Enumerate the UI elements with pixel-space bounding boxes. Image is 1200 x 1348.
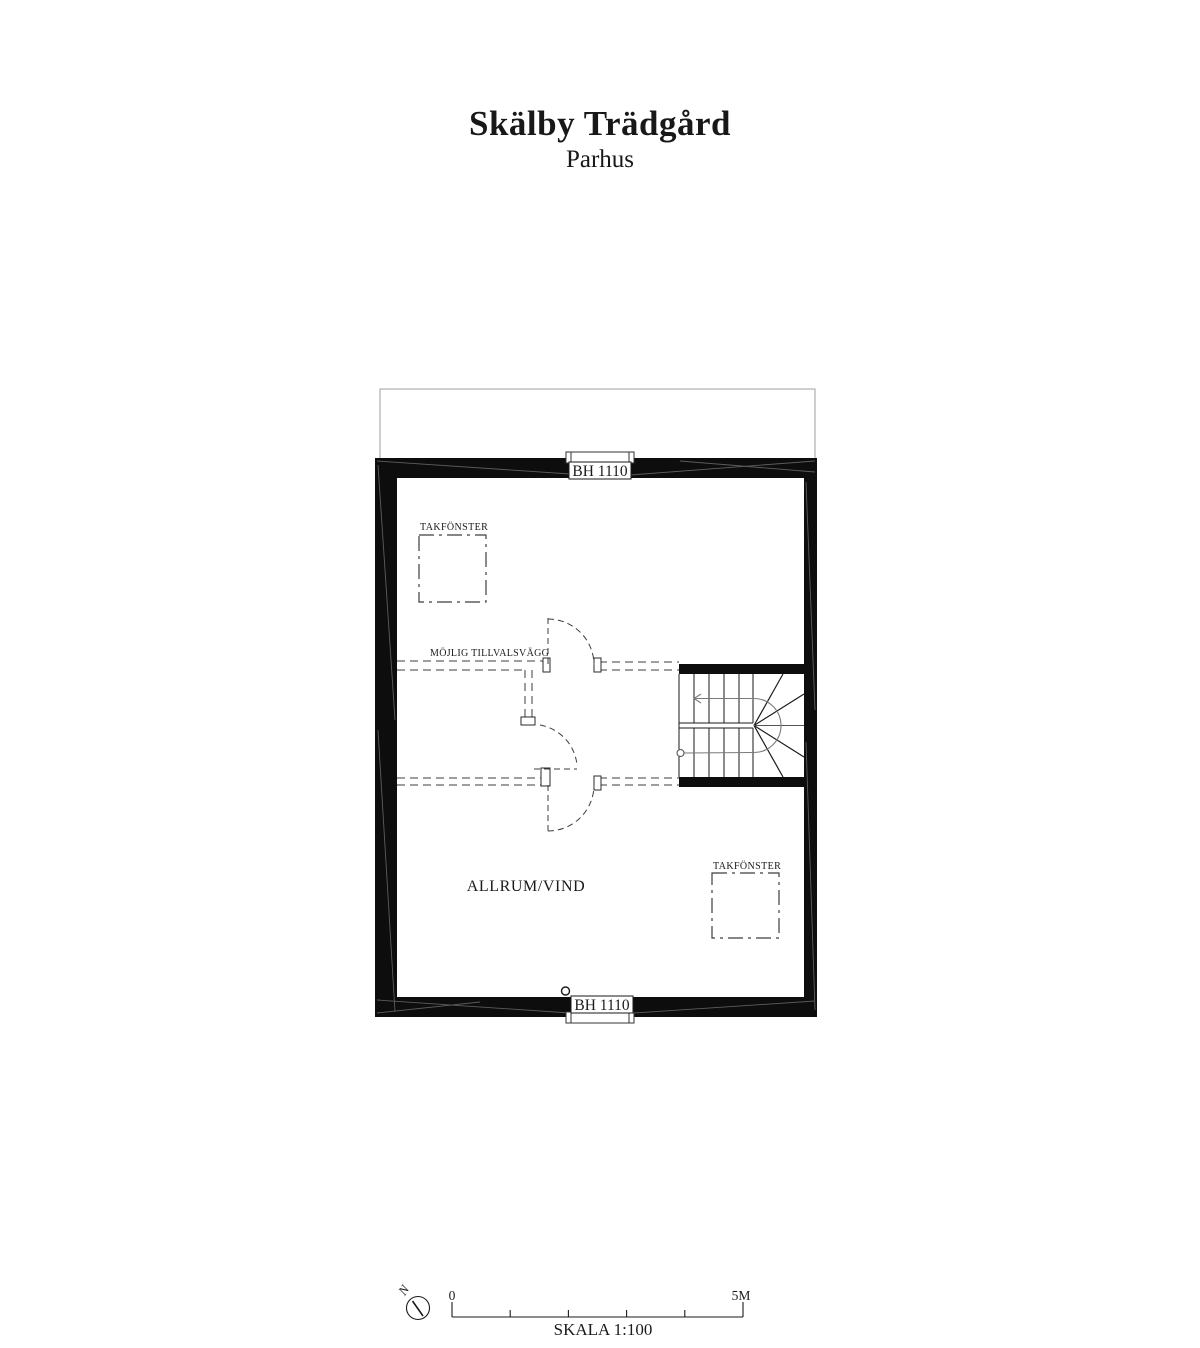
door-top-swing [548,619,594,665]
scale-bar: N 0 5M SKALA 1:100 [394,1281,750,1339]
stair-treads [679,674,753,777]
staircase [677,664,804,787]
north-label: N [394,1281,413,1299]
scale-max-label: 5M [732,1288,751,1303]
stair-winder-lines [754,674,804,777]
window-bottom-label: BH 1110 [574,997,630,1014]
roof-window-left-label: TAKFÖNSTER [420,521,488,533]
room-label: ALLRUM/VIND [467,878,586,895]
window-top-label: BH 1110 [572,463,628,480]
roof-window-right-label: TAKFÖNSTER [713,860,781,872]
north-arrow-icon [407,1297,430,1320]
floor-symbol-circle [562,987,570,995]
stair-wall-top [679,664,804,674]
optional-wall-label: MÖJLIG TILLVALSVÄGG [430,647,549,659]
floor-plan-page: Skälby Trädgård Parhus [0,0,1200,1348]
stair-wall-bottom [679,777,804,787]
exterior-walls [375,458,817,1017]
roof-window-left: TAKFÖNSTER [419,521,488,602]
wall-hatch-lines [377,461,815,1013]
door-middle-swing [540,725,577,765]
roof-window-right: TAKFÖNSTER [712,860,781,938]
scale-label: SKALA 1:100 [554,1320,653,1339]
door-jambs [521,658,601,790]
scale-ruler [452,1302,743,1317]
window-top: BH 1110 [566,452,634,480]
door-bottom-swing [548,785,594,831]
window-bottom: BH 1110 [566,996,634,1023]
scale-zero-label: 0 [449,1288,456,1303]
floorplan-drawing: BH 1110 BH 1110 TAKFÖNSTER TAKFÖNSTER MÖ… [0,0,1200,1348]
roof-outline [380,389,815,458]
